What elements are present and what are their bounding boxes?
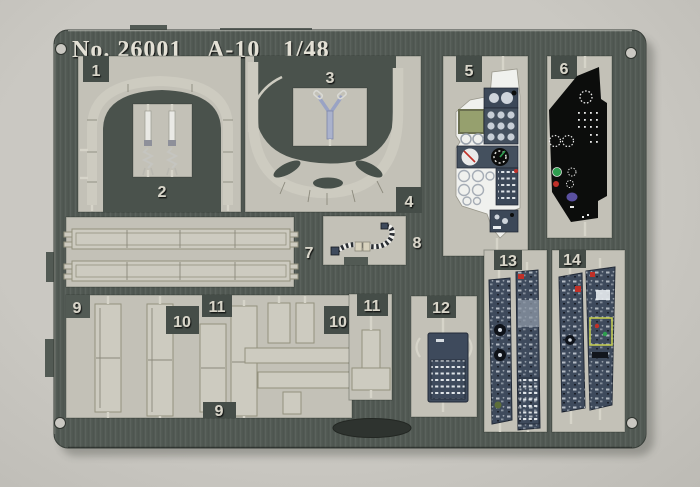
fret-photo-canvas: No. 26001A-101/48: [0, 0, 700, 487]
part-label-1: 1: [92, 63, 101, 80]
part-label-10b: 10: [329, 314, 347, 331]
cutout-parts-3-4: 3 4: [245, 56, 422, 213]
cutout-part-2: [133, 104, 192, 177]
part-label-13: 13: [499, 253, 517, 270]
part-label-5: 5: [465, 63, 474, 80]
part-label-14: 14: [563, 252, 581, 269]
part-7-rail-lower: [64, 261, 298, 281]
corner-hole-top-left: [56, 44, 67, 55]
bottom-slot-hole: [333, 419, 411, 438]
part-label-9a: 9: [73, 300, 82, 317]
photo-of-photoetch-fret: No. 26001A-101/48: [0, 0, 700, 487]
part-label-10a: 10: [173, 314, 191, 331]
cutout-part-12: 12: [411, 296, 477, 417]
part-7-rail-upper: [64, 229, 298, 249]
cutout-part-14: 14: [552, 250, 625, 432]
part-label-2: 2: [158, 184, 167, 201]
part-label-8: 8: [413, 235, 422, 252]
part-label-9b: 9: [215, 403, 224, 420]
cutout-parts-1-2: 1 2: [78, 56, 241, 212]
cutout-part-5: 5: [443, 56, 528, 256]
cutout-part-11: 11: [349, 294, 392, 400]
cutout-parts-9-10: 9 10 11 10 9: [66, 295, 353, 420]
cutout-part-6: 6: [547, 56, 612, 238]
part-label-4: 4: [405, 194, 414, 211]
cutout-part-7: 7: [64, 217, 314, 287]
part-label-7: 7: [305, 245, 314, 262]
strip-3: [200, 324, 226, 412]
part-8-notch: [344, 257, 368, 265]
cutout-part-13: 13: [484, 250, 547, 432]
part-5-dial-grid: [487, 111, 514, 140]
part-label-3: 3: [326, 70, 335, 87]
part-label-11a: 11: [209, 299, 226, 316]
corner-hole-top-right: [626, 48, 637, 59]
part-label-11b: 11: [364, 298, 381, 315]
part-label-12: 12: [432, 300, 450, 317]
part-label-6: 6: [560, 61, 569, 78]
oval-slot-center: [313, 178, 343, 189]
corner-hole-bottom-right: [627, 418, 638, 429]
strip-1: [95, 304, 121, 412]
corner-hole-bottom-left: [55, 418, 66, 429]
